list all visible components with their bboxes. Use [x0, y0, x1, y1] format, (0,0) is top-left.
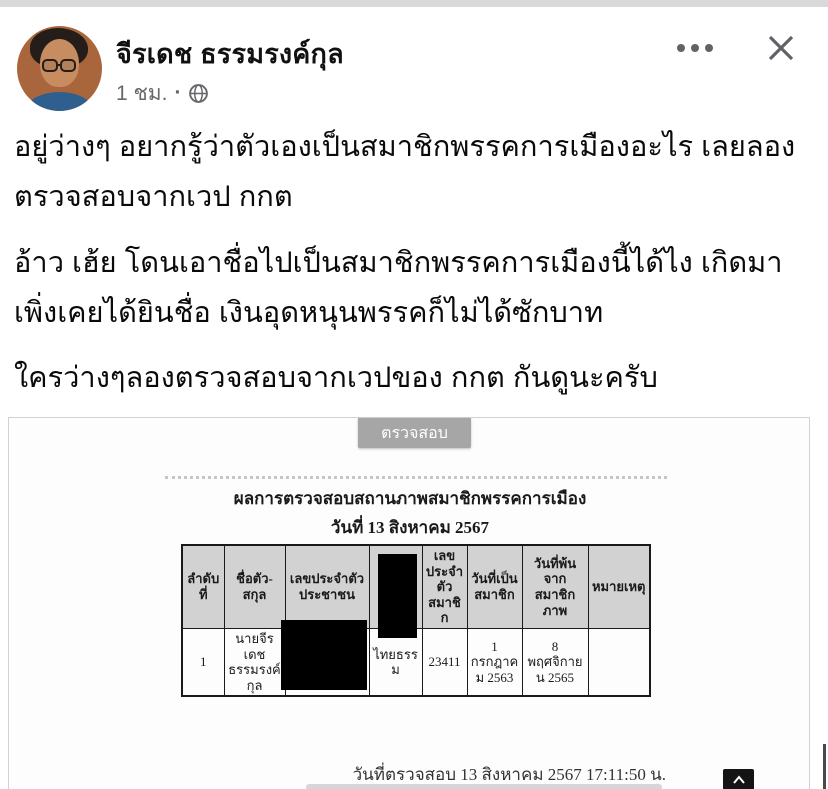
author-name[interactable]: จีรเดช ธรรมรงค์กุล	[116, 32, 344, 75]
footer-bar-fragment	[306, 784, 662, 789]
header-cell-remark: หมายเหตุ	[588, 545, 650, 628]
result-date-subtitle: วันที่ 13 สิงหาคม 2567	[9, 514, 811, 541]
close-button[interactable]	[756, 24, 806, 72]
header-cell-member-no: เลขประจำตัวสมาชิก	[422, 545, 467, 628]
header-cell-citizen-id: เลขประจำตัวประชาชน	[285, 545, 369, 628]
avatar-glasses-bridge	[57, 64, 62, 66]
cell-remark	[588, 628, 650, 696]
check-button: ตรวจสอบ	[358, 418, 471, 448]
table-row: 1 นายจีรเดช ธรรมรงค์กุล ไทยธรรม 23411 1 …	[182, 628, 650, 696]
header-cell-end-date: วันที่พ้นจากสมาชิกภาพ	[522, 545, 588, 628]
top-divider-strip	[0, 0, 828, 7]
dotted-separator	[165, 476, 667, 479]
timestamp: 1 ชม.	[116, 77, 167, 110]
post-paragraph: อยู่ว่างๆ อยากรู้ว่าตัวเองเป็นสมาชิกพรรค…	[14, 122, 816, 222]
avatar-glasses-left	[42, 59, 58, 72]
more-options-button[interactable]	[664, 30, 726, 66]
close-icon	[761, 28, 801, 68]
header-cell-join-date: วันที่เป็นสมาชิก	[467, 545, 522, 628]
cell-name: นายจีรเดช ธรรมรงค์กุล	[224, 628, 285, 696]
redaction-box-party-column	[378, 554, 417, 638]
chevron-up-icon	[732, 775, 746, 785]
globe-icon	[188, 83, 209, 104]
attached-image[interactable]: ตรวจสอบ ผลการตรวจสอบสถานภาพสมาชิกพรรคการ…	[8, 417, 810, 789]
cell-order: 1	[182, 628, 224, 696]
cell-member-no: 23411	[422, 628, 467, 696]
avatar-glasses-right	[60, 59, 76, 72]
post-meta: 1 ชม. ·	[116, 80, 209, 106]
scrollbar-fragment	[823, 744, 826, 789]
redaction-box-id-number	[281, 620, 367, 690]
avatar-shirt	[25, 92, 94, 111]
header-cell-name: ชื่อตัว-สกุล	[224, 545, 285, 628]
post-paragraph: ใครว่างๆลองตรวจสอบจากเวปของ กกต กันดูนะค…	[14, 353, 816, 403]
cell-end-date: 8 พฤศจิกายน 2565	[522, 628, 588, 696]
scroll-to-top-button	[723, 769, 754, 789]
avatar[interactable]	[17, 26, 102, 111]
post-paragraph: อ้าว เฮ้ย โดนเอาชื่อไปเป็นสมาชิกพรรคการเ…	[14, 238, 816, 338]
cell-join-date: 1 กรกฎาคม 2563	[467, 628, 522, 696]
result-title: ผลการตรวจสอบสถานภาพสมาชิกพรรคการเมือง	[9, 485, 811, 512]
more-options-icon	[677, 44, 685, 52]
cell-party-name: ไทยธรรม	[369, 628, 422, 696]
header-cell-order: ลำดับที่	[182, 545, 224, 628]
facebook-post-view: จีรเดช ธรรมรงค์กุล 1 ชม. · อยู่ว่างๆ อยา…	[0, 0, 828, 789]
meta-separator: ·	[174, 81, 181, 105]
